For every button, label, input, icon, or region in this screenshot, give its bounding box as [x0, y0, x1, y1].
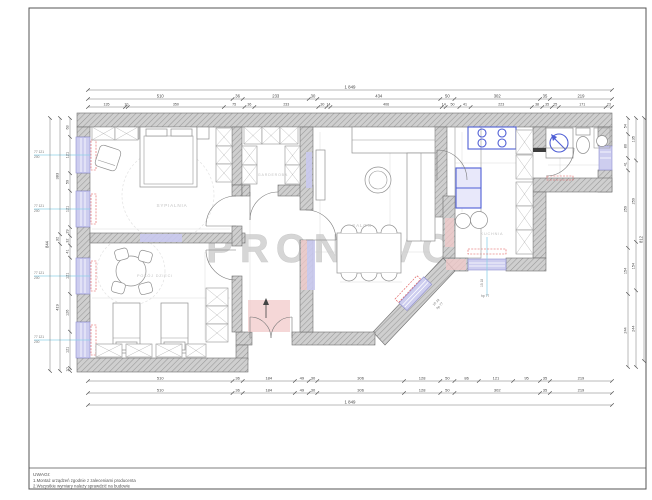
dim-label: 306: [357, 375, 364, 380]
dim-right-mid: 135259154244: [631, 116, 637, 369]
window-bathroom: [599, 146, 612, 170]
dim-label: 30: [320, 102, 324, 106]
dim-label: 50: [445, 387, 450, 392]
dim-label: 510: [157, 387, 164, 392]
dim-label: 171: [579, 102, 585, 106]
dim-label: 32: [54, 236, 59, 241]
dim-label: 59: [65, 180, 69, 184]
dim-right-outer: 812: [638, 116, 645, 363]
pillow: [171, 129, 192, 136]
dining-table: [337, 233, 401, 273]
dim-label: 14: [326, 102, 330, 106]
toilet-tank: [576, 128, 590, 135]
dim-label: 128: [419, 387, 426, 392]
radiator-icon: [91, 140, 96, 170]
notes-line-2: 2.Wszystkie wymiary należy sprawdzić na …: [33, 484, 131, 489]
dim-top-total: 1 849: [86, 84, 614, 91]
room-label-bedroom: SYPIALNIA: [157, 203, 188, 208]
dining-chair: [361, 273, 377, 281]
door-bedroom: [206, 196, 236, 226]
notes-line-1: 1.Montaż urządzeń zgodnie z zaleceniami …: [33, 478, 136, 483]
dim-label: 36: [235, 93, 240, 98]
floor-plan: PRONOVO: [34, 113, 612, 372]
dim-label: 121: [65, 273, 69, 279]
chair: [138, 281, 153, 295]
dim-top-row2: 51036233304345030235219: [86, 93, 614, 100]
dim-label: 233: [283, 102, 289, 106]
svg-text:77 121: 77 121: [34, 335, 44, 339]
dim-label: 35: [545, 102, 549, 106]
dim-label: 383: [54, 172, 59, 179]
armchair: [94, 144, 122, 172]
room-label-kitchen: KUCHNIA: [481, 232, 504, 236]
dim-label: 128: [419, 375, 426, 380]
dim-label: 41: [463, 102, 467, 106]
dim-label: 54: [623, 124, 627, 128]
dim-label: 14: [442, 102, 446, 106]
dim-label: 259: [623, 206, 627, 212]
dim-label: 86: [464, 375, 469, 380]
tv-cabinet: [316, 150, 325, 200]
dim-label: 38: [535, 102, 539, 106]
dim-bottom-total: 1 849: [86, 399, 614, 406]
room-label-kidsroom: POKÓJ DZIECI: [137, 273, 173, 278]
kids-room-furniture: [111, 247, 188, 353]
cooktop-icon: [468, 127, 516, 149]
pillow: [146, 129, 167, 136]
dim-label: 259: [631, 198, 635, 204]
dim-label: 233: [272, 93, 280, 98]
door-wardrobe: [250, 192, 278, 220]
dim-label: 244: [631, 325, 635, 331]
dim-label: 302: [494, 93, 502, 98]
dim-label: 75: [232, 102, 236, 106]
dim-label: 29: [65, 229, 69, 233]
dim-label: 35: [543, 93, 548, 98]
dim-label: 121: [65, 152, 69, 158]
dim-label: 95: [524, 375, 529, 380]
dim-bottom-row2: 5103618449303061285030235219: [86, 387, 614, 394]
room-label-living: SALON: [352, 223, 372, 228]
dim-label: 434: [375, 93, 383, 98]
dim-label: 10: [124, 102, 128, 106]
svg-text:200: 200: [34, 340, 40, 344]
svg-text:15 18: 15 18: [480, 279, 484, 287]
room-label-wardrobe: GARDEROBA: [258, 173, 288, 177]
toilet-bowl: [577, 137, 590, 154]
dim-label: 244: [623, 327, 627, 333]
dim-right-inner: 548041259154244: [623, 116, 629, 369]
dim-label: 35: [543, 375, 548, 380]
dim-label: 80: [623, 144, 627, 148]
svg-text:77 121: 77 121: [34, 150, 44, 154]
dim-label: 306: [357, 387, 364, 392]
dim-label: 36: [235, 375, 240, 380]
radiator-icon: [91, 194, 96, 224]
dim-label: 23: [607, 102, 611, 106]
dim-bottom-row1: 51036184493030612850861219535219: [86, 375, 614, 382]
svg-text:200: 200: [34, 155, 40, 159]
dim-label: 844: [44, 240, 49, 248]
dim-label: 30: [311, 375, 316, 380]
svg-text:77 121: 77 121: [34, 271, 44, 275]
svg-text:77 121: 77 121: [34, 204, 44, 208]
svg-text:200: 200: [34, 276, 40, 280]
dining-chair: [381, 273, 397, 281]
drawing-sheet: PRONOVO: [0, 0, 652, 500]
dim-label: 219: [578, 387, 585, 392]
dim-label: 35: [543, 387, 548, 392]
dim-label: 121: [65, 206, 69, 212]
dim-label: 25: [553, 102, 557, 106]
svg-text:200: 200: [34, 209, 40, 213]
dim-label: 126: [65, 310, 69, 316]
dim-label: 350: [173, 102, 179, 106]
dim-label: 63: [65, 125, 69, 129]
dim-label: 49: [300, 387, 305, 392]
dim-label: 812: [638, 235, 643, 243]
dim-label: 50: [445, 375, 450, 380]
dim-label: 184: [265, 375, 272, 380]
sink-bowl: [471, 212, 488, 229]
dim-label: 49: [300, 375, 305, 380]
dim-label: 36: [247, 102, 251, 106]
dim-label: 50: [445, 93, 450, 98]
dim-label: 32: [65, 238, 69, 242]
dim-label: 419: [54, 303, 59, 310]
dim-label: 41: [623, 162, 627, 166]
dim-label: 1 849: [345, 84, 357, 89]
dim-label: 223: [498, 102, 504, 106]
dim-label: 510: [157, 375, 164, 380]
dim-label: 30: [311, 387, 316, 392]
threshold: [533, 148, 546, 152]
dim-label: 154: [623, 268, 627, 274]
dim-label: 219: [577, 93, 585, 98]
dim-top-row3: 1351035075362333014406145041223383525171…: [86, 102, 614, 108]
dim-label: 41: [65, 249, 69, 253]
dim-label: 219: [578, 375, 585, 380]
kitchen-furniture: [455, 127, 516, 258]
dim-label: 510: [157, 93, 165, 98]
radiator-icon: [91, 261, 96, 291]
dim-label: 135: [631, 136, 635, 142]
dim-label: 302: [494, 387, 501, 392]
dim-label: 121: [65, 347, 69, 353]
dining-chair: [341, 273, 357, 281]
svg-text:hp 77: hp 77: [481, 294, 489, 298]
dim-label: 30: [311, 93, 316, 98]
dim-label: 50: [451, 102, 455, 106]
radiator-icon: [91, 325, 96, 355]
dim-label: 184: [265, 387, 272, 392]
sink-bowl: [456, 214, 471, 229]
dim-label: 36: [235, 387, 240, 392]
dim-label: 1 849: [345, 399, 357, 404]
dim-label: 406: [383, 102, 389, 106]
washbasin-bowl: [597, 136, 608, 147]
dim-label: 154: [631, 263, 635, 269]
dim-label: 135: [104, 102, 110, 106]
nightstand: [197, 127, 209, 139]
dim-label: 121: [493, 375, 500, 380]
